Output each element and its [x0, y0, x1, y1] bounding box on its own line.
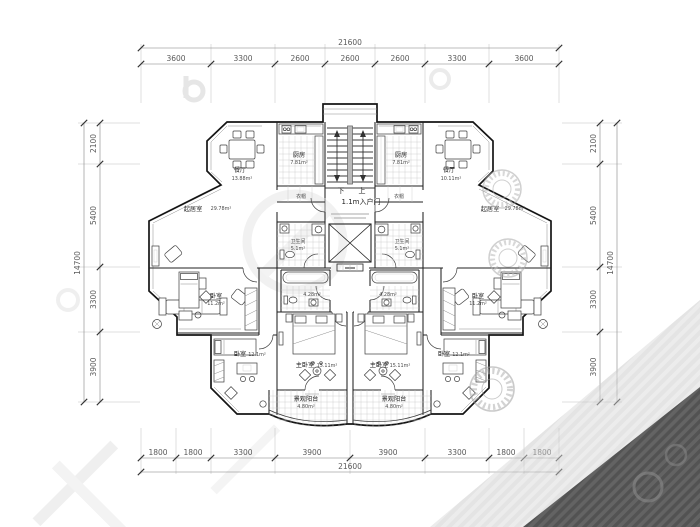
- dim-right-seg: 2100: [589, 134, 598, 153]
- label-r-dining-area: 10.11m²: [441, 176, 462, 182]
- label-l-bath2-area: 4.28m²: [303, 292, 321, 298]
- label-l-bed-mid-area: 11.2m²: [207, 301, 225, 307]
- dim-left-seg: 2100: [89, 134, 98, 153]
- label-l-bed-mid: 卧室: [210, 292, 222, 300]
- dim-top-seg: 2600: [290, 54, 309, 63]
- living-furniture: [152, 245, 248, 329]
- label-r-bed-mid: 卧室: [472, 292, 484, 300]
- dim-left-seg: 3900: [89, 357, 98, 376]
- dimension-bottom: 1800 1800 3300 3900 3900 3300 1800 1800 …: [138, 428, 562, 475]
- dim-right-seg: 3300: [589, 290, 598, 309]
- dim-right-seg: 5400: [589, 206, 598, 225]
- label-r-dining: 餐厅: [443, 166, 455, 174]
- label-r-bed-mid-area: 11.2m²: [469, 301, 487, 307]
- dim-bottom-seg: 1800: [496, 448, 515, 457]
- label-r-balcony: 景观阳台: [382, 395, 407, 403]
- dim-right-seg: 3900: [589, 357, 598, 376]
- dim-top-seg: 2600: [390, 54, 409, 63]
- room-labels: 下 上 1.1m入户门 餐厅 13.88m² 厨房 7.81m² 衣帽 起居室 …: [184, 151, 526, 410]
- label-stair-up: 上: [359, 186, 366, 195]
- label-l-bath-area: 5.1m²: [291, 246, 306, 252]
- dim-top-seg: 3600: [514, 54, 533, 63]
- label-l-master-area: 15.11m²: [317, 363, 338, 369]
- label-r-bed-low: 卧室: [438, 350, 450, 358]
- dim-left-total: 14700: [73, 251, 82, 275]
- dimension-left: 2100 5400 3300 3900 14700: [73, 120, 140, 405]
- master-bedroom: [279, 314, 342, 381]
- label-l-master: 主卧室: [296, 361, 315, 369]
- dim-left-seg: 5400: [89, 206, 98, 225]
- floorplan-screenshot: 21600 3600 3300 2600 2600 2600 3300 3600…: [0, 0, 700, 527]
- label-r-kitchen-area: 7.81m²: [392, 160, 410, 166]
- label-r-bath2-area: 4.28m²: [379, 292, 397, 298]
- label-r-kitchen: 厨房: [395, 151, 407, 159]
- label-r-master: 主卧室: [370, 361, 389, 369]
- label-r-bath-area: 5.1m²: [395, 246, 410, 252]
- plan-right-half: [325, 104, 551, 430]
- dim-left-seg: 3300: [89, 290, 98, 309]
- label-l-balcony-area: 4.80m²: [297, 404, 315, 410]
- watermark-corner: [430, 300, 700, 527]
- dim-top-seg: 3600: [166, 54, 185, 63]
- label-entry-door: 1.1m入户门: [342, 197, 381, 206]
- label-stair-down: 下: [338, 187, 345, 195]
- label-r-bed-low-area: 12.1m²: [452, 352, 470, 358]
- dim-bottom-seg: 3300: [447, 448, 466, 457]
- label-l-living: 起居室: [184, 205, 203, 213]
- bedroom-lower: [214, 339, 266, 407]
- dim-top-seg: 3300: [233, 54, 252, 63]
- label-r-cloak: 衣帽: [394, 193, 404, 200]
- label-r-balcony-area: 4.80m²: [385, 404, 403, 410]
- dim-bottom-seg: 1800: [148, 448, 167, 457]
- label-r-living: 起居室: [481, 205, 500, 213]
- label-l-kitchen-area: 7.81m²: [290, 160, 308, 166]
- dim-right-total: 14700: [606, 251, 615, 275]
- dim-bottom-seg: 3900: [378, 448, 397, 457]
- dim-bottom-total: 21600: [338, 462, 362, 471]
- label-l-bed-low: 卧室: [234, 350, 246, 358]
- label-l-bath: 卫生间: [291, 238, 306, 245]
- label-l-dining: 餐厅: [234, 166, 246, 174]
- label-r-master-area: 15.11m²: [390, 363, 411, 369]
- dim-bottom-seg: 3900: [302, 448, 321, 457]
- label-r-bath: 卫生间: [395, 238, 410, 245]
- dimension-right: 2100 5400 3300 3900 14700: [562, 120, 622, 405]
- dim-bottom-seg: 1800: [183, 448, 202, 457]
- label-l-cloak: 衣帽: [296, 193, 306, 200]
- label-l-balcony: 景观阳台: [294, 395, 319, 403]
- dining-set: [220, 131, 264, 168]
- label-l-living-area: 29.78m²: [211, 206, 232, 212]
- label-l-kitchen: 厨房: [293, 151, 305, 159]
- dim-top-seg: 2600: [340, 54, 359, 63]
- dim-top-total: 21600: [338, 38, 362, 47]
- dim-top-seg: 3300: [447, 54, 466, 63]
- dim-bottom-seg: 3300: [233, 448, 252, 457]
- label-l-dining-area: 13.88m²: [232, 176, 253, 182]
- label-l-bed-low-area: 12.1m²: [248, 352, 266, 358]
